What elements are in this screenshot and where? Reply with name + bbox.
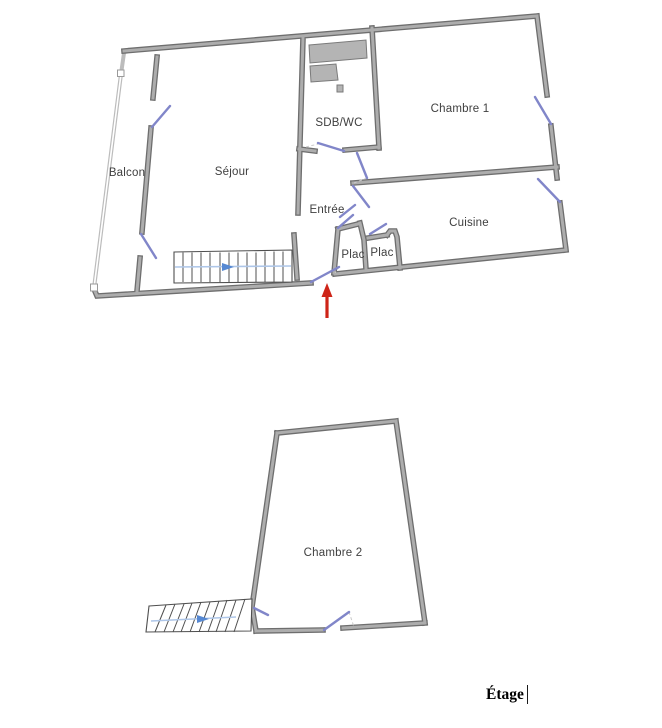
room-label-chambre2: Chambre 2	[304, 547, 363, 559]
staircase-lower	[146, 599, 252, 632]
room-label-plac-left: Plac	[341, 249, 364, 261]
room-label-plac-right: Plac	[370, 247, 393, 259]
upper-floor-plan: Balcon Séjour SDB/WC Chambre 1 Entrée Cu…	[91, 16, 567, 318]
caption-etage-text: Étage	[486, 686, 524, 704]
lower-walls-fill	[252, 421, 425, 631]
text-cursor	[527, 685, 529, 704]
room-label-entree: Entrée	[309, 204, 344, 216]
room-label-cuisine: Cuisine	[449, 217, 489, 229]
room-label-sejour: Séjour	[215, 166, 249, 178]
caption-etage[interactable]: Étage	[486, 685, 528, 704]
doors-lower	[254, 608, 349, 630]
floor-plan-canvas: Balcon Séjour SDB/WC Chambre 1 Entrée Cu…	[0, 0, 662, 728]
room-label-balcon: Balcon	[109, 167, 145, 179]
bathroom-fixtures	[309, 40, 367, 92]
entry-arrow-icon	[322, 283, 333, 318]
room-label-sdb-wc: SDB/WC	[315, 117, 362, 129]
balcony-outer-wall-inner	[94, 74, 121, 288]
lower-floor-plan: Chambre 2	[146, 421, 425, 632]
balcony-post-bottom	[91, 284, 98, 291]
room-label-chambre1: Chambre 1	[431, 103, 490, 115]
staircase-upper	[174, 250, 292, 283]
balcony-post-top	[118, 70, 125, 77]
document-page: Balcon Séjour SDB/WC Chambre 1 Entrée Cu…	[0, 0, 662, 728]
